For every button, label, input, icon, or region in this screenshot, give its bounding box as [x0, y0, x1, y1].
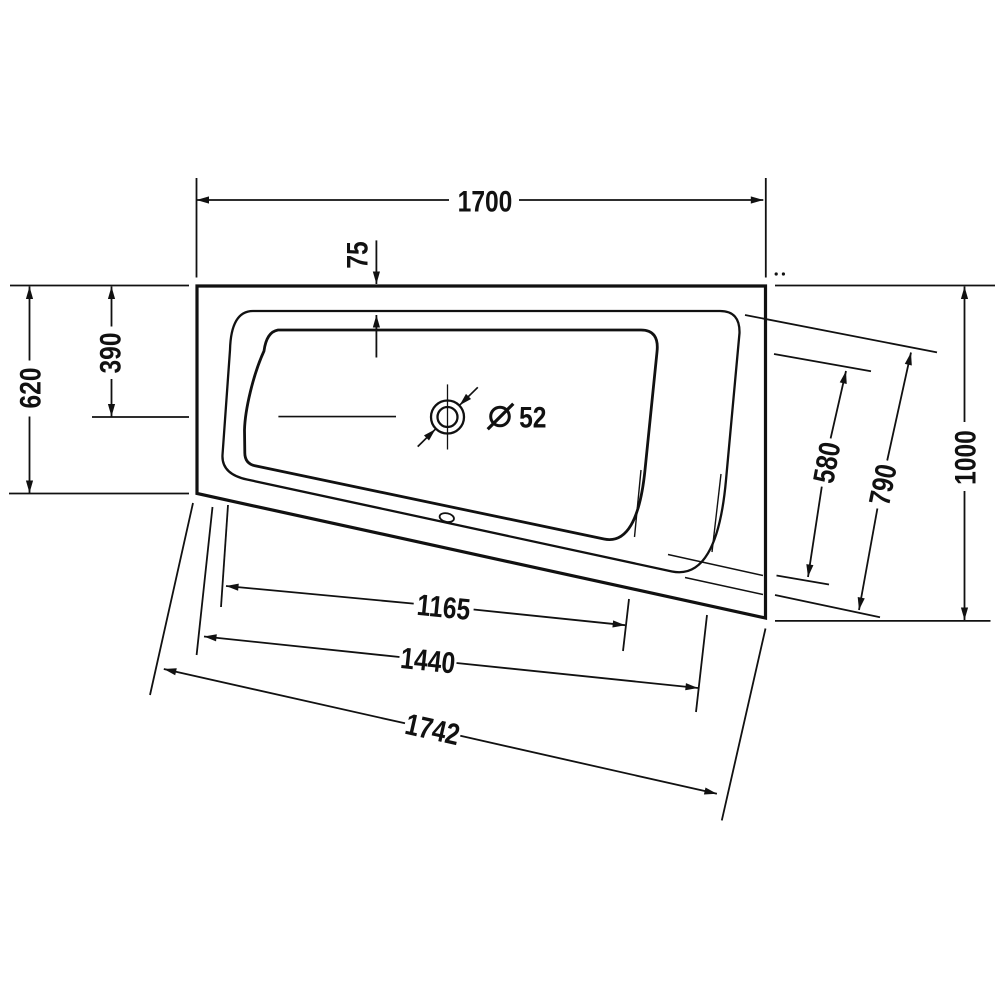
svg-text:52: 52	[519, 400, 546, 434]
svg-text:1000: 1000	[948, 430, 982, 485]
svg-text:390: 390	[93, 332, 127, 373]
svg-text:1440: 1440	[399, 641, 457, 680]
svg-text:620: 620	[13, 367, 47, 408]
svg-text:1165: 1165	[415, 588, 471, 627]
svg-text:1700: 1700	[458, 184, 513, 218]
svg-text:75: 75	[340, 241, 374, 268]
